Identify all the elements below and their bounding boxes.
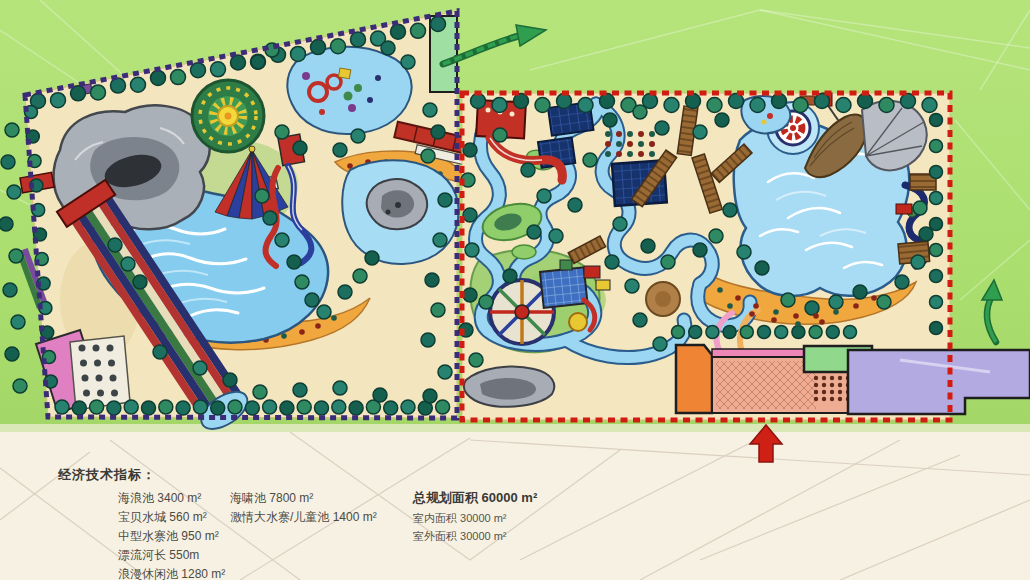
tree-icon [836,98,851,113]
tree-icon [930,322,943,335]
tree-icon [815,94,830,109]
lounger-dot [871,295,877,301]
tree-icon [231,55,246,70]
tree-icon [13,379,27,393]
tree-icon [930,140,943,153]
paver-dot [814,397,818,401]
site-plan-canvas [0,0,1030,580]
tree-icon [463,208,477,222]
table-dot [83,390,90,397]
tree-icon [895,275,909,289]
tree-icon [829,295,843,309]
tree-icon [245,401,259,415]
tree-icon [391,24,406,39]
tree-icon [911,255,925,269]
tree-icon [121,257,135,271]
lounger-dot [649,141,655,147]
tree-icon [775,326,788,339]
paper-fade [0,424,1030,436]
tree-icon [421,333,435,347]
leisure-pool [342,160,458,264]
tree-icon [293,383,307,397]
tree-icon [251,55,265,69]
table-dot [97,390,104,397]
right-park [459,93,1030,420]
tree-icon [253,385,267,399]
tree-icon [655,121,669,135]
tree-icon [431,17,446,32]
tree-icon [433,233,447,247]
tree-icon [514,94,529,109]
tree-icon [421,149,435,163]
paver-dot [830,390,834,394]
tree-icon [758,326,771,339]
tree-icon [492,98,507,113]
tree-icon [633,313,647,327]
tree-icon [317,305,331,319]
tree-icon [463,143,477,157]
table-dot [93,345,100,352]
tree-icon [7,185,21,199]
tree-icon [91,85,106,100]
tree-icon [331,39,346,54]
tree-icon [672,326,685,339]
paver-dot [830,397,834,401]
tree-icon [605,255,619,269]
tree-icon [5,347,19,361]
tree-icon [583,153,597,167]
site-plan: 经济技术指标： 海浪池 3400 m² 宝贝水城 560 m² 中型水寨池 95… [0,0,1030,580]
paver-dot [814,390,818,394]
tree-icon [0,217,13,231]
tree-icon [737,245,751,259]
tree-icon [297,400,311,414]
tree-icon [853,285,867,299]
lounger-dot [638,131,644,137]
tree-icon [275,125,289,139]
paver-dot [822,376,826,380]
tree-icon [295,275,309,289]
tree-icon [535,98,550,113]
tree-icon [479,295,493,309]
tree-icon [600,94,615,109]
tree-icon [263,211,277,225]
tree-icon [664,98,679,113]
tree-icon [353,269,367,283]
tree-icon [537,189,551,203]
tree-icon [930,192,943,205]
tree-icon [9,249,23,263]
table-dot [96,375,103,382]
paver-dot [822,390,826,394]
lounger-dot [638,141,644,147]
table-dot [107,345,114,352]
table-dot [94,360,101,367]
pink-strip [712,349,808,357]
tree-icon [686,94,701,109]
table-dot [82,375,89,382]
lounger-dot [773,309,779,315]
lounger-dot [315,323,321,329]
tree-icon [930,244,943,257]
tree-icon [193,400,207,414]
sand-circle-center [655,291,671,307]
tree-icon [171,70,186,85]
tree-icon [578,98,593,113]
tree-icon [275,233,289,247]
paver-dot [838,383,842,387]
lounger-dot [795,321,801,327]
tree-icon [55,400,69,414]
tree-icon [930,114,943,127]
tree-icon [280,401,294,415]
lounger-dot [727,303,733,309]
tree-icon [425,273,439,287]
paver-dot [830,383,834,387]
tree-icon [557,94,572,109]
lounger-dot [853,303,859,309]
tree-icon [263,400,277,414]
lounger-dot [331,315,337,321]
tree-icon [338,285,352,299]
tree-icon [521,163,535,177]
tree-icon [223,373,237,387]
tree-icon [384,401,398,415]
tree-icon [3,283,17,297]
tree-icon [351,129,365,143]
tree-icon [211,401,225,415]
paver-dot [830,376,834,380]
kids-water-city [287,47,411,134]
tree-icon [436,400,450,414]
lounger-dot [833,309,839,315]
tree-icon [373,388,387,402]
tree-icon [740,326,753,339]
tree-icon [858,94,873,109]
tree-icon [291,46,306,61]
lounger-dot [616,141,622,147]
lounger-dot [735,295,741,301]
tree-icon [401,55,415,69]
tree-icon [469,353,483,367]
tree-icon [661,255,675,269]
tree-icon [844,326,857,339]
tree-icon [465,243,479,257]
tree-icon [108,238,122,252]
paver-dot [822,397,826,401]
tree-icon [693,125,707,139]
tree-icon [159,400,173,414]
lounger-dot [753,303,759,309]
tree-icon [463,288,477,302]
tree-icon [107,401,121,415]
tree-icon [826,326,839,339]
tree-icon [503,269,517,283]
tree-icon [333,381,347,395]
tree-icon [365,251,379,265]
tree-icon [493,128,507,142]
tree-icon [305,293,319,307]
tree-icon [922,98,937,113]
tree-icon [755,261,769,275]
lounger-dot [813,313,819,319]
tree-icon [315,401,329,415]
table-dot [111,390,118,397]
tree-icon [930,270,943,283]
tree-icon [191,63,206,78]
lounger-dot [605,141,611,147]
tree-icon [919,227,933,241]
lounger-dot [616,131,622,137]
lounger-dot [649,151,655,157]
tree-icon [653,337,667,351]
tree-icon [351,32,366,47]
tree-icon [51,93,66,108]
tree-icon [693,243,707,257]
tree-icon [311,40,326,55]
lounger-dot [627,151,633,157]
lounger-dot [627,141,633,147]
lounger-dot [717,287,723,293]
tree-icon [689,326,702,339]
tree-icon [411,23,426,38]
tree-icon [729,94,744,109]
tree-icon [879,98,894,113]
tree-icon [423,103,437,117]
tree-icon [613,217,627,231]
tree-icon [349,401,363,415]
tree-icon [133,275,147,289]
paver-dot [814,376,818,380]
lounger-dot [605,151,611,157]
table-dot [80,360,87,367]
tree-icon [333,143,347,157]
tree-icon [772,94,787,109]
tree-icon [438,365,452,379]
tree-icon [877,295,891,309]
tree-icon [151,70,166,85]
tree-icon [793,98,808,113]
plaza-hatch [716,361,816,409]
paver-dot [838,397,842,401]
tree-icon [709,229,723,243]
tree-icon [792,326,805,339]
paper-background [0,432,1030,580]
tree-icon [287,255,301,269]
table-dot [108,360,115,367]
tree-icon [723,326,736,339]
tree-icon [401,400,415,414]
sun-wheel [192,80,264,152]
tree-icon [228,400,242,414]
tree-icon [423,389,437,403]
tree-icon [809,326,822,339]
lounger-dot [649,131,655,137]
tree-icon [176,401,190,415]
lounger-dot [605,131,611,137]
tree-icon [193,361,207,375]
paver-dot [838,390,842,394]
tree-icon [913,201,927,215]
tree-icon [527,225,541,239]
table-dot [79,345,86,352]
tree-icon [707,98,722,113]
tree-icon [930,296,943,309]
lounger-dot [616,151,622,157]
tree-icon [72,401,86,415]
paver-dot [814,383,818,387]
tree-icon [211,62,226,77]
tree-icon [641,239,655,253]
tree-icon [438,193,452,207]
tree-icon [930,166,943,179]
tree-icon [1,155,15,169]
orange-hall [676,345,712,413]
tree-icon [11,315,25,329]
table-dot [110,375,117,382]
tree-icon [332,400,346,414]
tree-icon [5,123,19,137]
tree-icon [901,94,916,109]
lounger-dot [299,329,305,335]
tree-icon [381,41,395,55]
tree-icon [471,94,486,109]
tree-icon [431,125,445,139]
lounger-dot [627,131,633,137]
tree-icon [255,189,269,203]
tree-icon [603,113,617,127]
tree-icon [153,345,167,359]
tree-icon [805,301,819,315]
tree-icon [633,105,647,119]
tree-icon [568,198,582,212]
lounger-dot [819,319,825,325]
paver-dot [822,383,826,387]
paver-dot [838,376,842,380]
tree-icon [293,141,307,155]
tree-icon [723,203,737,217]
tree-icon [781,293,795,307]
tree-icon [431,303,445,317]
lounger-dot [749,311,755,317]
tree-icon [706,326,719,339]
terrace-plaza [70,336,130,410]
lounger-dot [638,151,644,157]
tree-icon [750,98,765,113]
rock-shadow [480,378,536,400]
tree-icon [142,401,156,415]
tree-icon [625,279,639,293]
tree-icon [715,113,729,127]
tree-icon [131,77,146,92]
tree-icon [549,229,563,243]
lounger-dot [793,313,799,319]
lounger-dot [771,317,777,323]
tree-icon [90,400,104,414]
tree-icon [124,400,138,414]
